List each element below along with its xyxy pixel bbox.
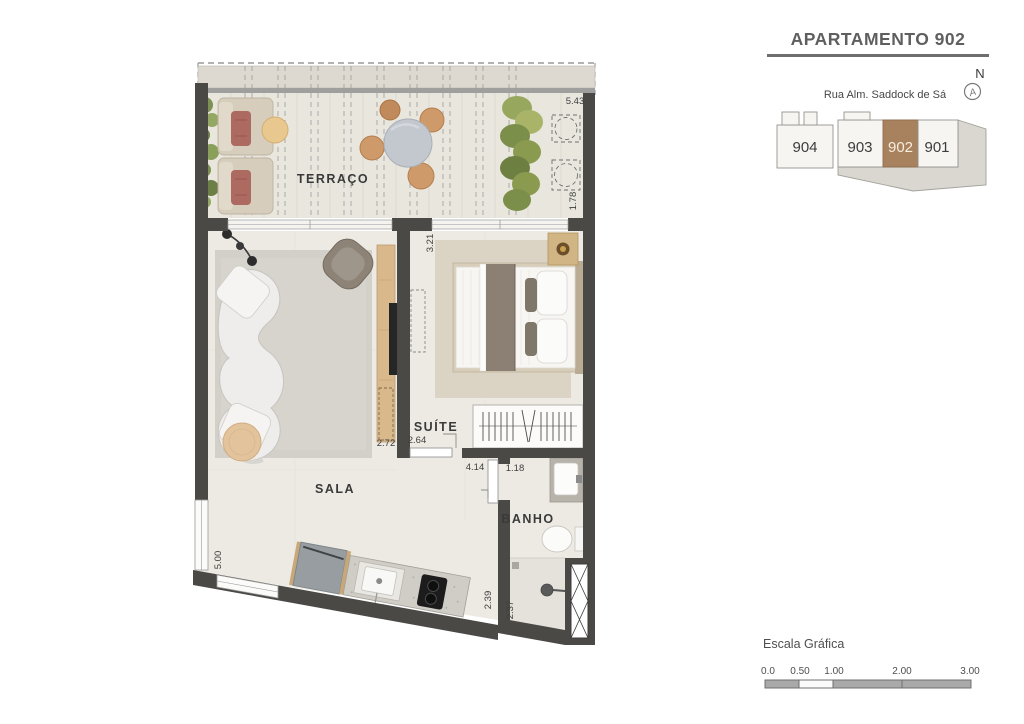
pillow — [537, 319, 567, 363]
dim-terrace-depth: 1.78 — [568, 192, 579, 211]
page-title: APARTAMENTO 902 — [763, 29, 993, 50]
lounge-chair — [218, 158, 273, 214]
pillow — [537, 271, 567, 315]
fridge — [293, 542, 347, 594]
faucet — [576, 475, 582, 483]
shower-drain — [541, 584, 553, 596]
dim-tv-wall: 2.72 — [377, 438, 396, 449]
scale-tick-200: 2.00 — [892, 666, 912, 677]
scale-bar: Escala Gráfica 0.0 0.50 1.00 2.00 3.00 — [760, 634, 995, 698]
street-label: Rua Alm. Saddock de Sá — [790, 89, 980, 101]
dim-terrace-width: 5.43 — [566, 96, 585, 107]
toilet-tank — [575, 527, 584, 551]
terrace-gravel-strip — [198, 66, 595, 88]
floor-plan-drawing: TERRAÇO SALA SUÍTE BANHO 5.43 1.78 3.21 … — [185, 50, 615, 662]
keyplan-unit-label-901: 901 — [924, 139, 949, 156]
terrace-label: TERRAÇO — [297, 172, 369, 186]
dim-banho-width: 1.18 — [506, 463, 525, 474]
headboard — [575, 261, 583, 374]
key-plan: 904 903 902 901 — [765, 103, 1017, 199]
dim-cozinha-depth: 2.39 — [483, 591, 494, 610]
bed-runner — [486, 264, 515, 371]
basin — [554, 463, 578, 495]
tv — [389, 303, 398, 375]
toilet — [542, 526, 572, 552]
scale-bar-title: Escala Gráfica — [763, 637, 844, 651]
side-table — [262, 117, 288, 143]
dim-suite-depth: 3.21 — [425, 234, 436, 253]
pillow-accent — [525, 278, 537, 312]
shower-valve — [512, 562, 519, 569]
suite-door — [410, 448, 452, 457]
bath-door — [488, 460, 498, 503]
compass-needle-glyph: A — [967, 87, 978, 100]
title-underline — [767, 54, 989, 57]
scale-tick-100: 1.00 — [824, 666, 844, 677]
dim-sala-depth: 5.00 — [213, 551, 224, 570]
terrace-railing — [198, 88, 595, 93]
pillow-accent — [525, 322, 537, 356]
dim-hall-width: 4.14 — [466, 462, 485, 473]
shaft-window — [571, 564, 588, 638]
keyplan-unit-label-904: 904 — [792, 139, 817, 156]
keyplan-unit-label-903: 903 — [847, 139, 872, 156]
dim-box-depth: 2.37 — [505, 601, 516, 620]
sala-label: SALA — [315, 482, 355, 496]
scale-tick-0: 0.0 — [761, 666, 775, 677]
dim-suite-width: 2.64 — [408, 435, 427, 446]
scale-tick-050: 0.50 — [790, 666, 810, 677]
compass-north-label: N — [975, 66, 984, 81]
scale-bar-track — [765, 680, 971, 688]
suite-label: SUÍTE — [414, 419, 458, 434]
keyplan-unit-label-902: 902 — [888, 139, 913, 156]
banho-label: BANHO — [501, 512, 554, 526]
floorplan-page: TERRAÇO SALA SUÍTE BANHO 5.43 1.78 3.21 … — [0, 0, 1024, 724]
scale-tick-300: 3.00 — [960, 666, 980, 677]
